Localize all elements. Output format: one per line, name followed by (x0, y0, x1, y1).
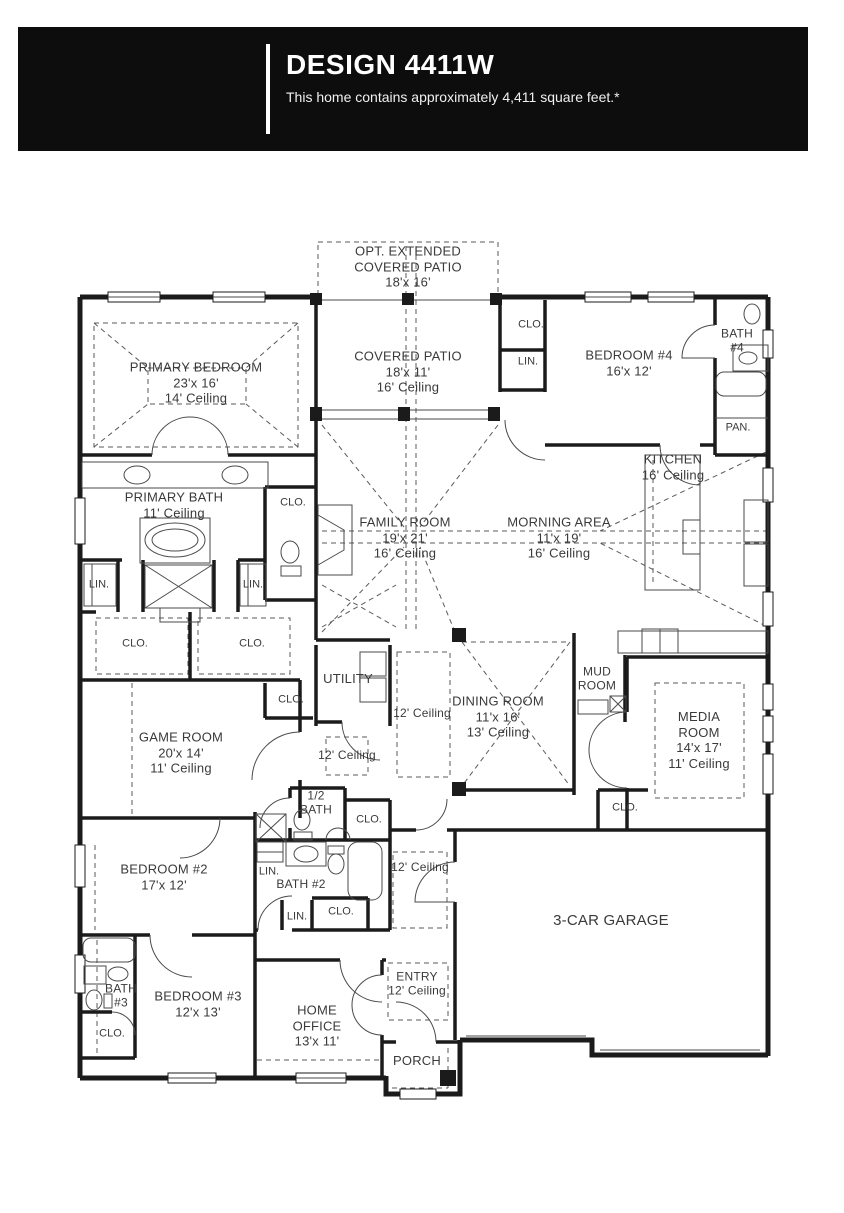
garage-label: 3-CAR GARAGE (553, 912, 669, 930)
pantry-label: PAN. (726, 421, 751, 434)
ceiling-note-dining-hall: 12' Ceiling (393, 706, 451, 720)
linen-label-primary-right: LIN. (243, 578, 263, 591)
closet-label-family: CLO. (280, 496, 306, 509)
floor-plan-drawing (0, 0, 844, 1213)
floor-plan-page: DESIGN 4411W This home contains approxim… (0, 0, 844, 1213)
bath4-label: BATH #4 (721, 327, 753, 356)
ceiling-note-hall: 12' Ceiling (318, 748, 376, 762)
bedroom4-label: BEDROOM #4 16'x 12' (585, 347, 672, 378)
closet-label-bedroom4: CLO. (518, 318, 544, 331)
ceiling-note-rear-hall: 12' Ceiling (391, 860, 449, 874)
kitchen-label: KITCHEN 16' Ceiling (642, 451, 705, 482)
closet-label-bath3: CLO. (99, 1027, 125, 1040)
morning-area-label: MORNING AREA 11'x 19' 16' Ceiling (507, 515, 611, 562)
bedroom3-label: BEDROOM #3 12'x 13' (154, 988, 241, 1019)
closet-label-media: CLO. (612, 801, 638, 814)
primary-bedroom-label: PRIMARY BEDROOM 23'x 16' 14' Ceiling (130, 360, 263, 407)
bath2-label: BATH #2 (276, 877, 325, 891)
mud-room-label: MUD ROOM (578, 665, 616, 694)
entry-label: ENTRY 12' Ceiling (388, 970, 446, 999)
primary-bath-label: PRIMARY BATH 11' Ceiling (125, 489, 223, 520)
media-room-label: MEDIA ROOM 14'x 17' 11' Ceiling (668, 709, 730, 771)
interior-walls (80, 297, 768, 1086)
linen-label-bedroom4: LIN. (518, 355, 538, 368)
bedroom2-label: BEDROOM #2 17'x 12' (120, 861, 207, 892)
closet-label-bath2: CLO. (328, 905, 354, 918)
dining-room-label: DINING ROOM 11'x 16' 13' Ceiling (452, 694, 544, 741)
closet-label-halfbath: CLO. (356, 813, 382, 826)
linen-label-bath2-top: LIN. (259, 865, 279, 878)
bath3-label: BATH #3 (105, 982, 137, 1011)
half-bath-label: 1/2 BATH (300, 789, 332, 818)
closet-label-primary-left: CLO. (122, 637, 148, 650)
floor-plan: OPT. EXTENDED COVERED PATIO 18'x 16' COV… (0, 0, 844, 1213)
porch-label: PORCH (393, 1053, 441, 1069)
closet-label-primary-right: CLO. (239, 637, 265, 650)
opt-patio-label: OPT. EXTENDED COVERED PATIO 18'x 16' (354, 244, 462, 291)
linen-label-bath2-bottom: LIN. (287, 910, 307, 923)
family-room-label: FAMILY ROOM 19'x 21' 16' Ceiling (359, 515, 450, 562)
linen-label-primary-left: LIN. (89, 578, 109, 591)
utility-label: UTILITY (323, 671, 373, 687)
game-room-label: GAME ROOM 20'x 14' 11' Ceiling (139, 730, 223, 777)
covered-patio-label: COVERED PATIO 18'x 11' 16' Ceiling (354, 349, 462, 396)
home-office-label: HOME OFFICE 13'x 11' (293, 1003, 342, 1050)
closet-label-gameroom-hall: CLO. (278, 693, 304, 706)
